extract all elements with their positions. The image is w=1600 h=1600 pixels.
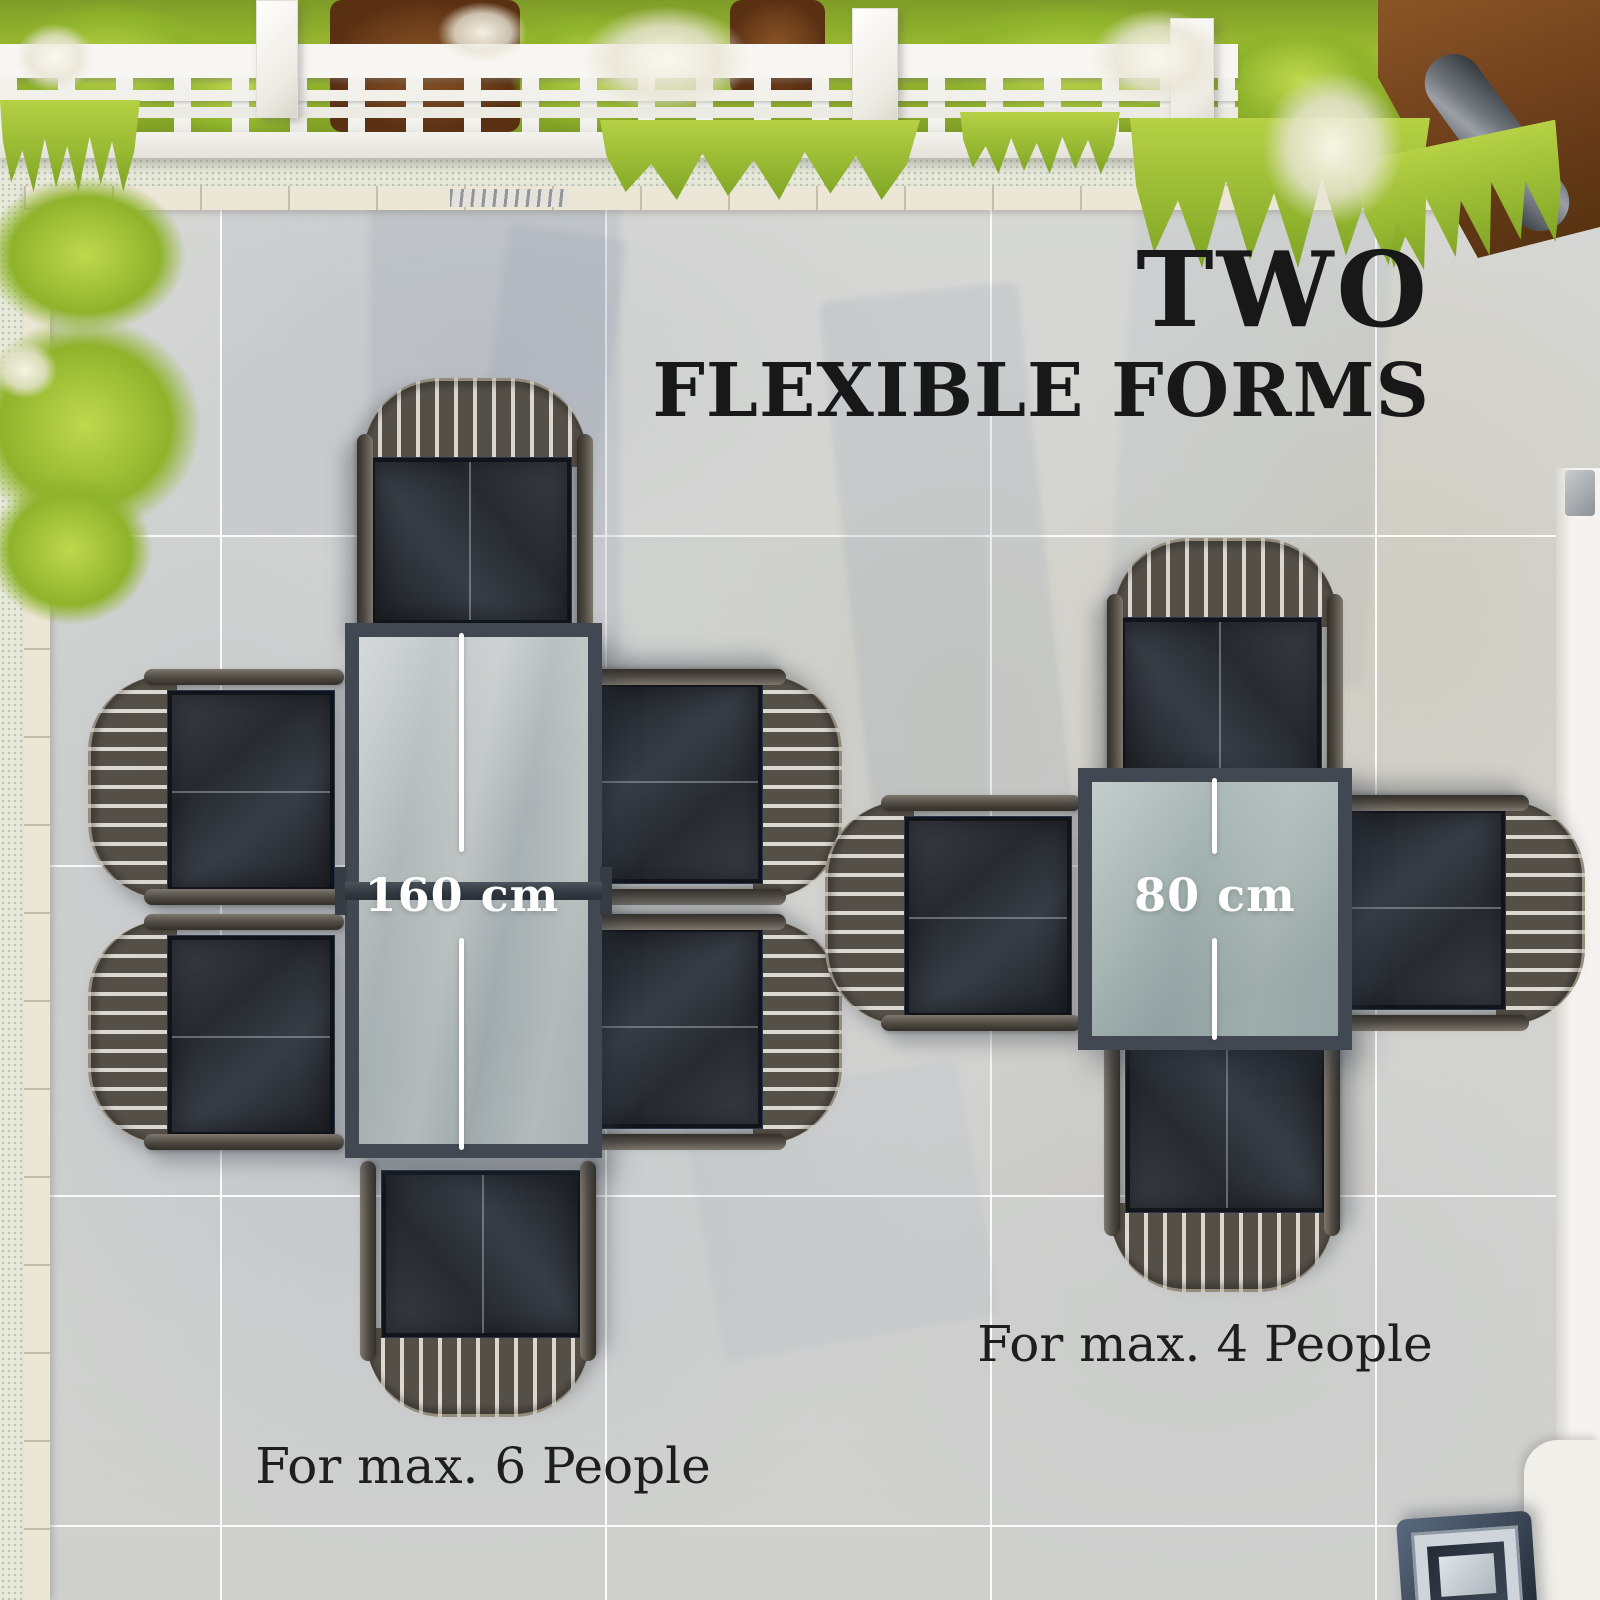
white-furniture-edge — [1556, 468, 1600, 1600]
chair-backrest — [1110, 1203, 1334, 1292]
chair-backrest — [88, 920, 177, 1144]
chair-seat — [371, 458, 571, 624]
white-furniture-corner — [1524, 1440, 1600, 1600]
chair-seat — [596, 683, 762, 883]
chair-armrest — [1329, 795, 1529, 811]
seat-seam — [172, 791, 330, 793]
grill-body — [1427, 1541, 1508, 1600]
metal-bracket — [1565, 470, 1595, 516]
seat-seam — [172, 1036, 330, 1038]
chair-armrest — [1329, 1015, 1529, 1031]
title-line-2: FLEXIBLE FORMS — [652, 354, 1430, 428]
chair-armrest — [1107, 594, 1123, 794]
chair-armrest — [357, 434, 373, 634]
chair-seat — [168, 936, 334, 1136]
chair-armrest — [1104, 1036, 1120, 1236]
chair-backrest — [1496, 801, 1585, 1025]
chair-armrest — [580, 1161, 596, 1361]
grill-lid — [1439, 1553, 1497, 1597]
chair-seat — [1339, 809, 1505, 1009]
chair-seat — [168, 691, 334, 891]
seat-seam — [600, 1026, 758, 1028]
chair-armrest — [1324, 1036, 1340, 1236]
page-title: TWO FLEXIBLE FORMS — [652, 238, 1430, 428]
chair-square-top — [1109, 536, 1341, 794]
chair-armrest — [1327, 594, 1343, 794]
flower-cluster — [1235, 40, 1430, 255]
chair-seat — [382, 1171, 582, 1337]
chair-armrest — [144, 914, 344, 930]
chair-backrest — [825, 801, 914, 1025]
product-scene: 160 cm 80 cm TWO FLEXIBLE FORMS For max.… — [0, 0, 1600, 1600]
chair-armrest — [586, 669, 786, 685]
chair-seat — [1126, 1046, 1326, 1212]
chair-backrest — [1113, 538, 1337, 627]
caption-six-people: For max. 6 People — [255, 1437, 710, 1495]
dimension-label-rect: 160 cm — [365, 868, 560, 922]
chair-armrest — [144, 1134, 344, 1150]
chair-backrest — [366, 1328, 590, 1417]
seat-seam — [909, 917, 1067, 919]
drain-grate — [450, 189, 568, 207]
flower-cluster — [0, 10, 110, 105]
grill-rim — [1411, 1525, 1524, 1600]
chair-armrest — [360, 1161, 376, 1361]
chair-rect-bottom — [362, 1161, 594, 1419]
seat-seam — [1226, 1050, 1228, 1208]
pergola-post — [256, 0, 298, 118]
chair-rect-right-2 — [586, 916, 844, 1148]
chair-backrest — [363, 378, 587, 467]
chair-armrest — [586, 889, 786, 905]
chair-rect-right-1 — [586, 671, 844, 903]
chair-armrest — [881, 1015, 1081, 1031]
pergola-post — [852, 8, 898, 128]
chair-rect-left-2 — [86, 916, 344, 1148]
seat-seam — [482, 1175, 484, 1333]
chair-armrest — [586, 914, 786, 930]
chair-rect-top — [359, 376, 591, 634]
measure-line-segment — [459, 938, 464, 1150]
chair-backrest — [88, 675, 177, 899]
dimension-label-square: 80 cm — [1134, 868, 1296, 922]
measure-line-segment — [1212, 778, 1217, 854]
grill-top-view — [1396, 1510, 1539, 1600]
chair-armrest — [881, 795, 1081, 811]
caption-four-people: For max. 4 People — [977, 1315, 1432, 1373]
chair-armrest — [144, 669, 344, 685]
seat-seam — [1343, 907, 1501, 909]
chair-seat — [1121, 618, 1321, 784]
chair-armrest — [144, 889, 344, 905]
chair-rect-left-1 — [86, 671, 344, 903]
chair-seat — [596, 928, 762, 1128]
title-line-1: TWO — [652, 238, 1430, 342]
chair-seat — [905, 817, 1071, 1017]
seat-seam — [1219, 622, 1221, 780]
seat-seam — [600, 781, 758, 783]
chair-square-bottom — [1106, 1036, 1338, 1294]
chair-square-left — [823, 797, 1081, 1029]
chair-armrest — [586, 1134, 786, 1150]
measure-line-segment — [1212, 938, 1217, 1040]
chair-armrest — [577, 434, 593, 634]
measure-line-segment — [459, 633, 464, 852]
chair-square-right — [1329, 797, 1587, 1029]
seat-seam — [469, 462, 471, 620]
